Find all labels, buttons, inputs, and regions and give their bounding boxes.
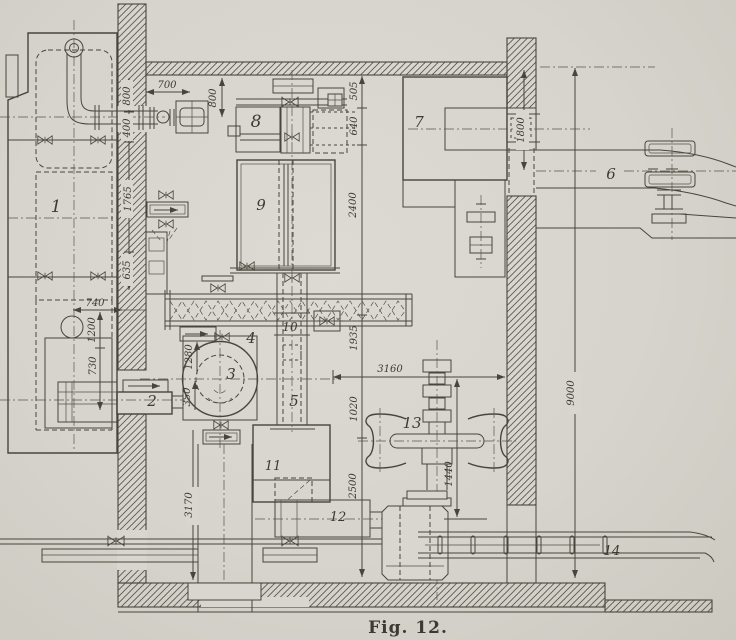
dim-400: 400	[122, 118, 133, 139]
dim-1800: 1800	[516, 117, 527, 143]
machine-9	[202, 70, 340, 432]
part-label-10: 10	[282, 320, 298, 334]
figure-12-plan-drawing: 700 800 800 400 1765 635 740 1200 730 12…	[0, 0, 736, 640]
dim-1765: 1765	[123, 186, 134, 211]
dim-1280: 1280	[184, 344, 195, 370]
part-label-8: 8	[251, 112, 262, 132]
dim-1440: 1440	[444, 461, 455, 487]
dim-350: 350	[182, 387, 193, 407]
dim-3170: 3170	[184, 492, 195, 518]
part-label-5: 5	[289, 392, 299, 410]
wall-opening-conveyor	[507, 505, 536, 583]
machine-8-assembly	[228, 79, 358, 153]
part-label-14: 14	[604, 544, 621, 559]
dim-635: 635	[122, 260, 133, 279]
dim-640: 640	[349, 116, 360, 136]
part-label-4: 4	[245, 329, 256, 347]
part-label-3: 3	[226, 365, 236, 383]
dimensions: 700 800 800 400 1765 635 740 1200 730 12…	[73, 67, 655, 580]
wall-door-opening	[509, 148, 534, 196]
rotary-valve-3	[140, 327, 340, 448]
figure-caption: Fig. 12.	[368, 618, 448, 638]
dim-1020: 1020	[349, 396, 360, 422]
discharge-duct	[188, 444, 261, 612]
part-label-1: 1	[51, 197, 62, 217]
part-label-2: 2	[146, 392, 157, 410]
part-label-13: 13	[402, 414, 421, 432]
dim-1200: 1200	[87, 317, 98, 343]
dim-9000: 9000	[566, 380, 577, 406]
wall-gap-belt	[117, 530, 147, 570]
dim-800-top: 800	[208, 88, 219, 108]
part-label-7: 7	[414, 113, 424, 131]
part-label-12: 12	[330, 510, 347, 525]
part-label-9: 9	[256, 196, 266, 214]
part-label-11: 11	[265, 459, 282, 474]
dim-700: 700	[157, 80, 177, 91]
drive-unit-7	[403, 77, 590, 277]
track-6	[536, 128, 736, 240]
dim-2500: 2500	[348, 473, 359, 500]
dim-740: 740	[85, 298, 105, 309]
feeder-box	[146, 202, 188, 294]
dim-2400: 2400	[348, 192, 359, 219]
part-label-6: 6	[606, 165, 616, 183]
dim-730: 730	[88, 356, 99, 376]
distributor-13	[358, 340, 516, 600]
dim-800-wall: 800	[122, 86, 133, 106]
drawing-sheet: 700 800 800 400 1765 635 740 1200 730 12…	[0, 0, 736, 640]
dim-505: 505	[349, 81, 360, 100]
chain-conveyor-14	[418, 532, 715, 562]
dim-1935: 1935	[349, 325, 360, 350]
machine-12	[0, 500, 445, 562]
dim-3160: 3160	[377, 364, 403, 375]
